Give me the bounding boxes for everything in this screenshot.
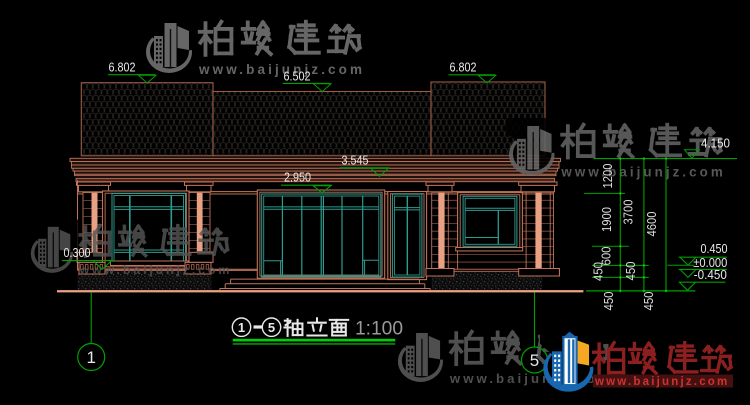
svg-text:-0.450: -0.450 <box>694 267 727 282</box>
svg-text:450: 450 <box>641 292 656 311</box>
svg-text:www.baijunjz.com: www.baijunjz.com <box>79 263 233 277</box>
svg-text:0.450: 0.450 <box>701 241 728 256</box>
svg-text:1200: 1200 <box>600 164 615 189</box>
svg-text:2.950: 2.950 <box>284 170 311 185</box>
svg-text:www.baijunjz.com: www.baijunjz.com <box>198 62 365 77</box>
svg-text:6.502: 6.502 <box>284 68 311 83</box>
svg-text:6.802: 6.802 <box>450 60 477 75</box>
svg-text:5: 5 <box>530 351 539 370</box>
svg-text:4.150: 4.150 <box>701 136 730 151</box>
svg-text:5: 5 <box>268 320 275 335</box>
svg-text:3700: 3700 <box>620 200 635 225</box>
svg-text:450: 450 <box>601 292 616 311</box>
svg-text:6.802: 6.802 <box>109 60 136 75</box>
svg-text:3.545: 3.545 <box>342 153 369 168</box>
svg-text:1900: 1900 <box>599 207 614 232</box>
svg-text:1: 1 <box>86 348 95 367</box>
svg-text:4600: 4600 <box>644 212 659 237</box>
svg-text:450: 450 <box>591 262 606 281</box>
svg-text:1:100: 1:100 <box>355 319 403 340</box>
svg-text:450: 450 <box>623 262 638 281</box>
svg-text:www.baijunjz.com: www.baijunjz.com <box>560 164 725 179</box>
svg-text:www.baijunjz.com: www.baijunjz.com <box>594 376 729 388</box>
svg-text:1: 1 <box>238 320 245 335</box>
svg-text:0.300: 0.300 <box>64 245 91 260</box>
